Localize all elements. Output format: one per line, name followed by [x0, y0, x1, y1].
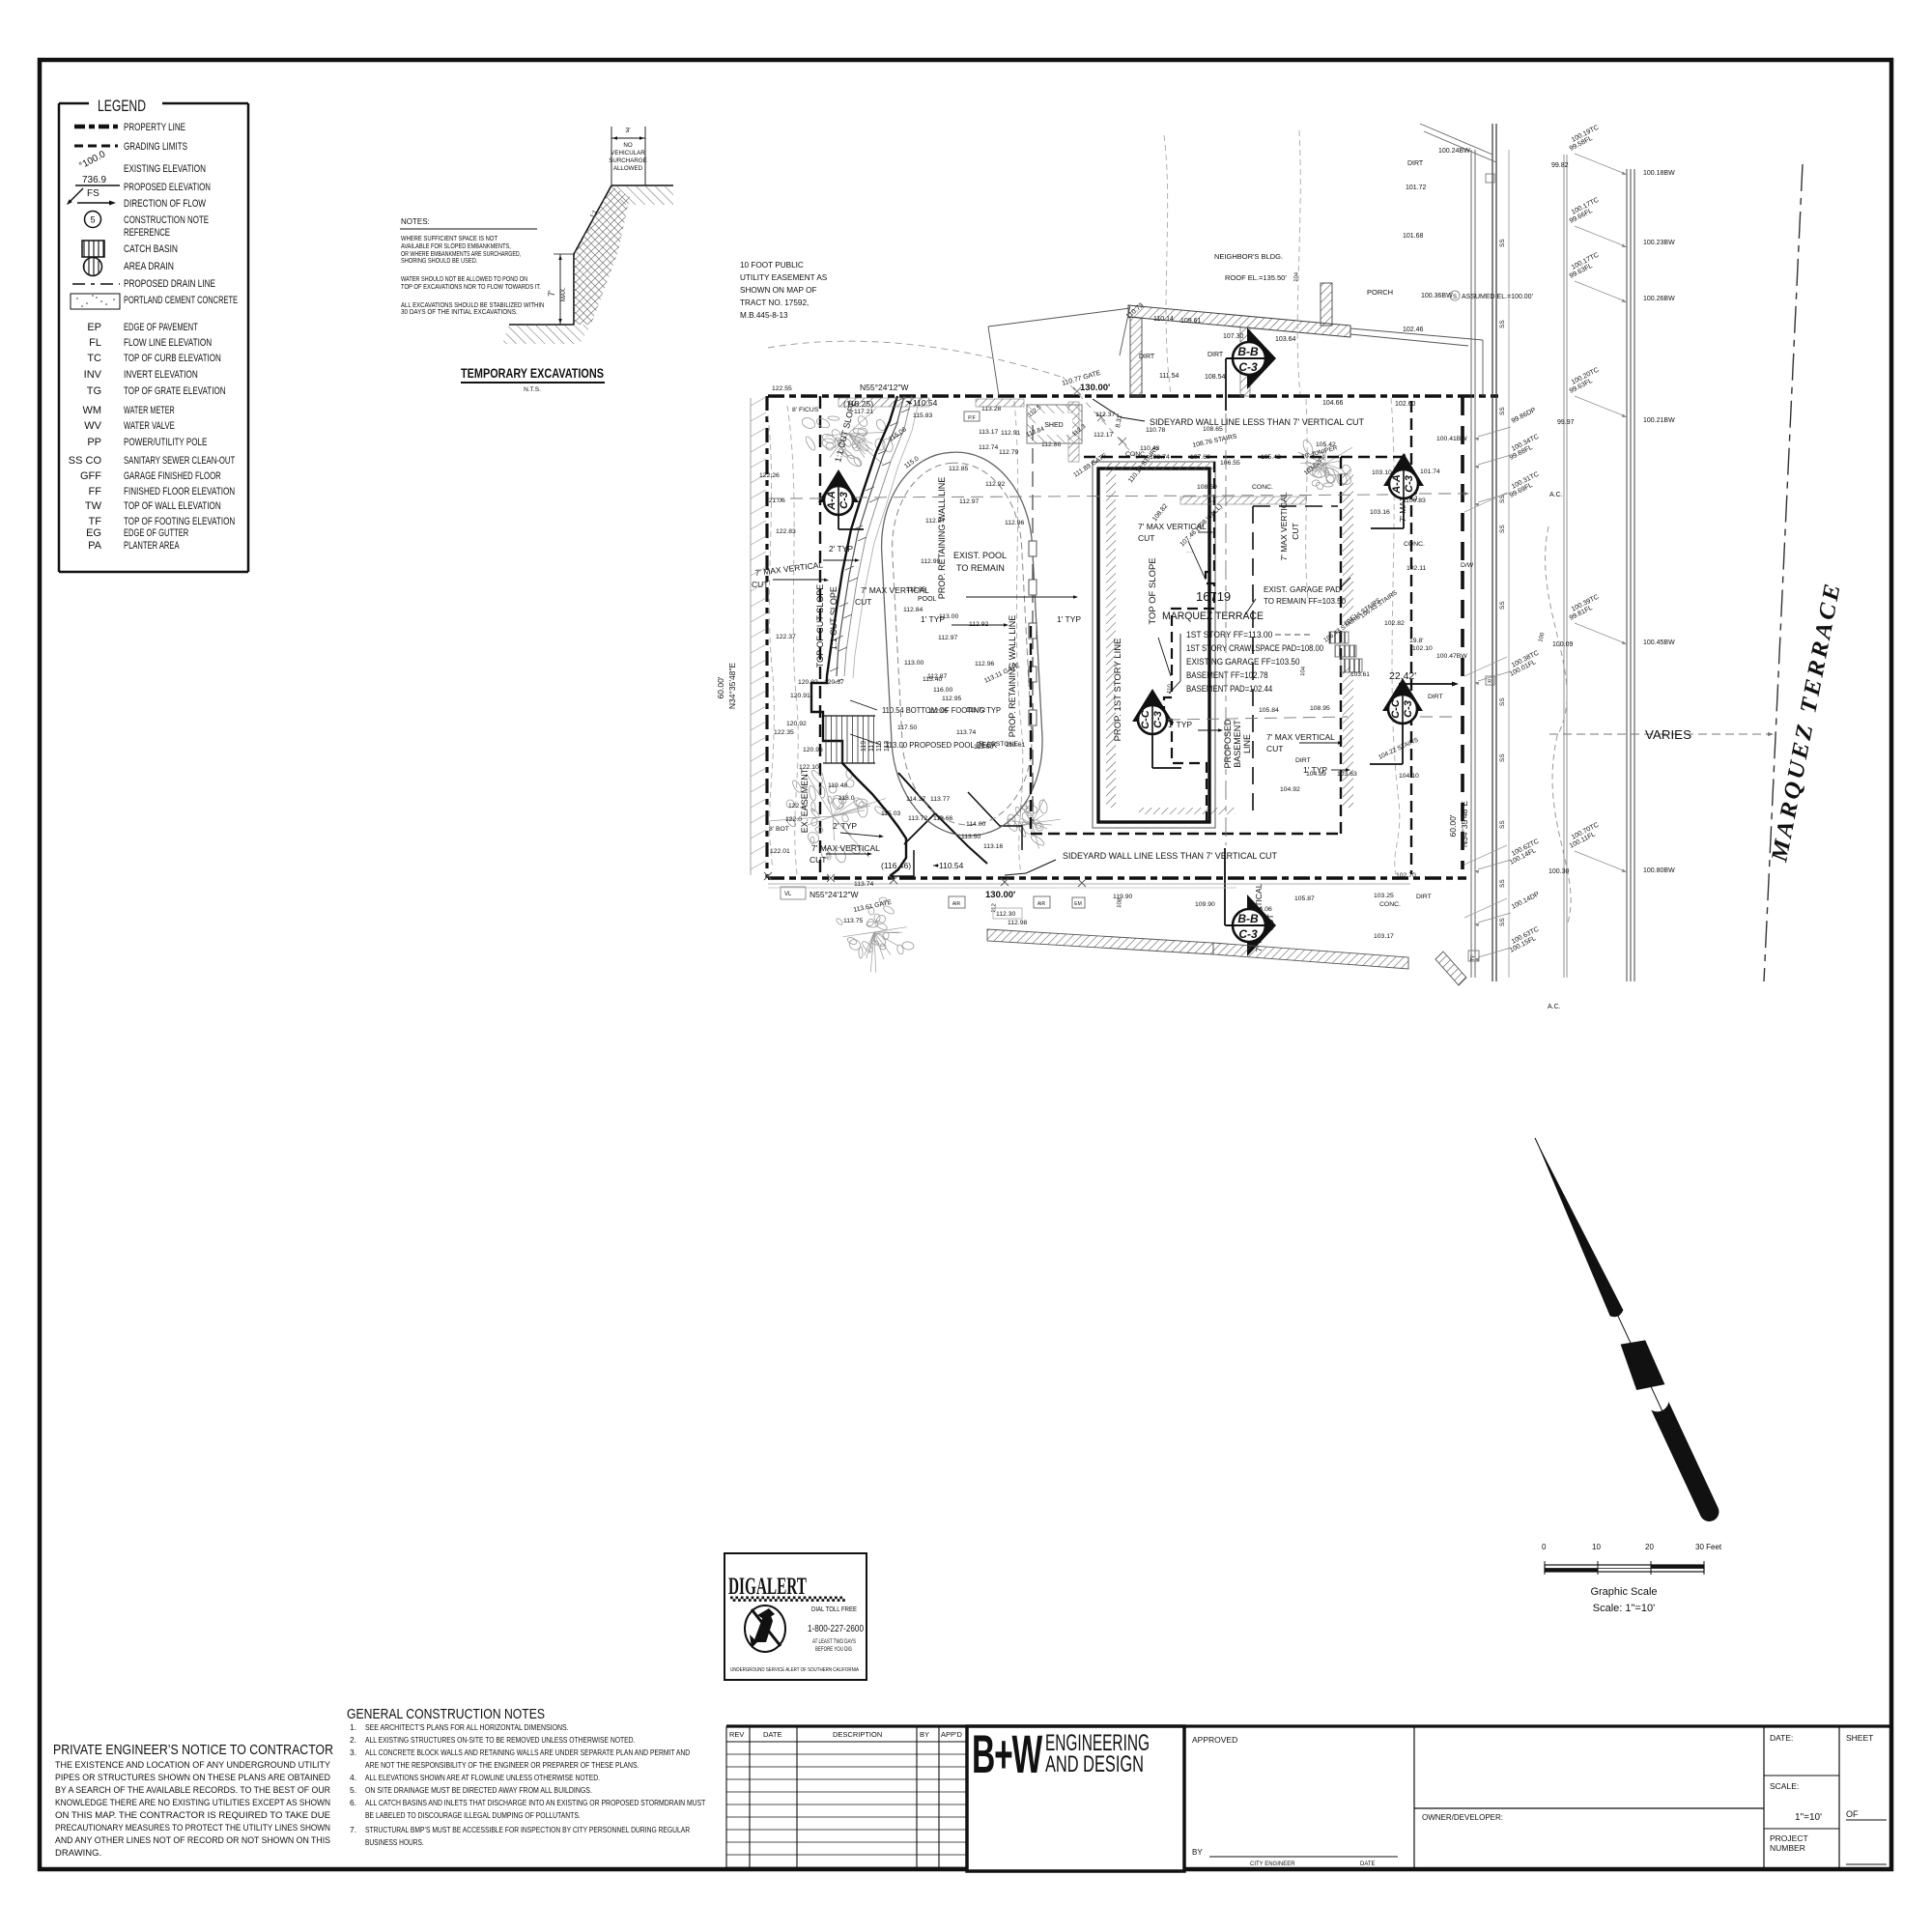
svg-text:N.T.S.: N.T.S. [524, 386, 541, 393]
svg-text:122.37: 122.37 [776, 634, 796, 640]
svg-text:7' MAX VERTICAL: 7' MAX VERTICAL [861, 585, 929, 595]
svg-text:736.9: 736.9 [82, 175, 106, 185]
svg-text:122.2: 122.2 [788, 803, 805, 810]
svg-text:LEGEND: LEGEND [98, 97, 146, 115]
svg-text:122.01: 122.01 [770, 848, 790, 855]
svg-text:115: 115 [876, 741, 883, 752]
svg-text:100.23BW: 100.23BW [1643, 240, 1675, 246]
svg-text:SS CO: SS CO [69, 455, 102, 467]
svg-text:103.63: 103.63 [1337, 771, 1357, 778]
svg-text:SS: SS [1499, 918, 1506, 926]
svg-text:1.: 1. [350, 1722, 356, 1732]
svg-text:103.10: 103.10 [1372, 469, 1392, 476]
svg-text:7' MAX VERTICAL: 7' MAX VERTICAL [1279, 492, 1289, 560]
svg-text:2' TYP: 2' TYP [829, 544, 853, 554]
svg-text:120.92: 120.92 [786, 721, 807, 727]
svg-text:OWNER/DEVELOPER:: OWNER/DEVELOPER: [1422, 1813, 1503, 1822]
svg-text:FS: FS [87, 188, 99, 199]
svg-text:113.66: 113.66 [933, 815, 953, 822]
svg-text:BASEMENT PAD=102.44: BASEMENT PAD=102.44 [1186, 684, 1272, 695]
svg-text:103.64: 103.64 [1275, 336, 1296, 343]
svg-text:POOL: POOL [918, 596, 937, 603]
svg-text:BY: BY [920, 1730, 929, 1739]
svg-text:DIRECTION OF FLOW: DIRECTION OF FLOW [124, 198, 206, 210]
svg-text:DRAWING.: DRAWING. [55, 1848, 101, 1859]
svg-text:2.: 2. [350, 1735, 356, 1745]
svg-text:FL: FL [89, 337, 101, 349]
svg-text:TOP OF EXCAVATIONS NOR TO FLOW: TOP OF EXCAVATIONS NOR TO FLOW TOWARDS I… [401, 284, 541, 291]
svg-text:OR WHERE EMBANKMENTS ARE SURCH: OR WHERE EMBANKMENTS ARE SURCHARGED, [401, 251, 521, 258]
svg-text:100.45BW: 100.45BW [1643, 639, 1675, 646]
svg-text:120.82: 120.82 [798, 679, 818, 686]
svg-text:PROP. 1ST STORY LINE: PROP. 1ST STORY LINE [1113, 639, 1123, 742]
svg-text:TOP OF FOOTING ELEVATION: TOP OF FOOTING ELEVATION [124, 516, 235, 527]
svg-text:110.78: 110.78 [1146, 427, 1166, 434]
svg-text:109.90: 109.90 [1195, 901, 1215, 908]
svg-text:PROPOSED ELEVATION: PROPOSED ELEVATION [124, 182, 211, 193]
svg-text:EDGE OF PAVEMENT: EDGE OF PAVEMENT [124, 322, 198, 333]
svg-text:112.79: 112.79 [999, 449, 1019, 456]
svg-text:108.69: 108.69 [1197, 484, 1217, 491]
svg-text:2' TYP: 2' TYP [833, 821, 857, 831]
svg-text:WATER METER: WATER METER [124, 405, 175, 416]
svg-text:(116.46): (116.46) [881, 861, 911, 870]
svg-text:PA: PA [88, 540, 102, 552]
svg-text:115.83: 115.83 [913, 412, 933, 419]
svg-text:112.96: 112.96 [1005, 520, 1025, 526]
svg-text:MAX.: MAX. [561, 287, 567, 301]
svg-text:115.03: 115.03 [881, 810, 901, 817]
svg-text:TO REMAIN FF=103.50: TO REMAIN FF=103.50 [1264, 596, 1346, 606]
svg-text:BE LABELED TO DISCOURAGE ILLEG: BE LABELED TO DISCOURAGE ILLEGAL DUMPING… [365, 1810, 581, 1820]
svg-text:130.00': 130.00' [1080, 383, 1110, 393]
svg-text:PROPOSED: PROPOSED [1223, 719, 1233, 769]
svg-text:EXISTING ELEVATION: EXISTING ELEVATION [124, 163, 206, 175]
svg-text:BUSINESS HOURS.: BUSINESS HOURS. [365, 1837, 424, 1847]
svg-text:113.50: 113.50 [961, 834, 981, 840]
svg-text:AND DESIGN: AND DESIGN [1045, 1751, 1144, 1777]
svg-text:112.91: 112.91 [1001, 430, 1021, 437]
svg-text:118.0: 118.0 [838, 795, 855, 802]
svg-text:6.: 6. [350, 1798, 356, 1807]
svg-text:PLANTER AREA: PLANTER AREA [124, 540, 180, 552]
svg-text:TV: TV [1470, 954, 1476, 961]
svg-text:99.82: 99.82 [1551, 162, 1569, 169]
svg-text:ALLOWED: ALLOWED [613, 165, 643, 172]
svg-text:103.17: 103.17 [1374, 933, 1394, 940]
svg-text:103.61: 103.61 [1350, 671, 1370, 678]
svg-text:3.: 3. [350, 1747, 356, 1757]
svg-text:WHERE SUFFICIENT SPACE IS NOT: WHERE SUFFICIENT SPACE IS NOT [401, 236, 498, 242]
svg-text:7' MAX VERTICAL: 7' MAX VERTICAL [1266, 732, 1335, 742]
svg-text:113.72: 113.72 [908, 815, 928, 822]
svg-text:CATCH BASIN: CATCH BASIN [124, 243, 178, 255]
svg-text:LINE: LINE [1242, 734, 1252, 753]
svg-text:TF: TF [89, 516, 102, 527]
svg-text:DIAL TOLL FREE: DIAL TOLL FREE [811, 1606, 857, 1613]
svg-text:C-C: C-C [1390, 698, 1402, 719]
svg-text:EXIST. GARAGE PAD: EXIST. GARAGE PAD [1264, 584, 1341, 594]
svg-text:AT LEAST TWO DAYS: AT LEAST TWO DAYS [812, 1639, 856, 1645]
svg-text:ROOF EL.=135.50′: ROOF EL.=135.50′ [1225, 273, 1287, 282]
svg-text:60.00': 60.00' [716, 676, 725, 698]
svg-text:112.30: 112.30 [996, 911, 1016, 918]
svg-text:SS: SS [1499, 820, 1506, 829]
svg-text:103.25: 103.25 [1374, 893, 1394, 899]
svg-text:SANITARY SEWER CLEAN-OUT: SANITARY SEWER CLEAN-OUT [124, 455, 235, 467]
svg-text:KNOWLEDGE THERE ARE NO EXISTIN: KNOWLEDGE THERE ARE NO EXISTING UTILITIE… [55, 1798, 330, 1808]
svg-text:SHED: SHED [1044, 422, 1063, 429]
svg-text:60.00': 60.00' [1448, 814, 1458, 837]
svg-text:112.74: 112.74 [979, 444, 999, 451]
svg-text:EP: EP [87, 322, 101, 333]
svg-text:105.87: 105.87 [1294, 895, 1315, 902]
svg-text:Graphic Scale: Graphic Scale [1590, 1586, 1657, 1598]
svg-text:POWER/UTILITY POLE: POWER/UTILITY POLE [124, 437, 207, 448]
svg-text:SHEET: SHEET [1846, 1733, 1873, 1743]
svg-text:VEHICULAR: VEHICULAR [611, 150, 645, 156]
svg-text:120.91: 120.91 [790, 693, 810, 699]
svg-text:GFF: GFF [80, 470, 101, 482]
svg-text:S: S [1453, 295, 1457, 300]
svg-text:103.16: 103.16 [1370, 509, 1390, 516]
svg-text:D/W: D/W [1461, 562, 1474, 569]
svg-text:116.00: 116.00 [933, 687, 953, 694]
svg-text:BY: BY [1192, 1848, 1203, 1857]
svg-text:CONC.: CONC. [1125, 451, 1147, 458]
svg-text:19.8': 19.8' [1409, 638, 1424, 644]
svg-text:SS: SS [1499, 525, 1506, 533]
svg-text:3': 3' [625, 128, 630, 134]
svg-text:SS: SS [1499, 407, 1506, 415]
svg-text:112.98: 112.98 [1008, 920, 1028, 926]
svg-text:117.21: 117.21 [854, 409, 874, 415]
svg-text:B+W: B+W [972, 1723, 1042, 1784]
svg-text:112.99: 112.99 [921, 558, 941, 565]
svg-text:1' TYP: 1' TYP [921, 614, 945, 624]
svg-text:99.97: 99.97 [1557, 419, 1575, 426]
svg-text:N34°35′48″E: N34°35′48″E [1460, 801, 1469, 848]
svg-text:P.F: P.F [968, 415, 976, 421]
svg-text:ALL EXCAVATIONS SHOULD BE STAB: ALL EXCAVATIONS SHOULD BE STABILIZED WIT… [401, 302, 544, 309]
svg-text:112.92: 112.92 [969, 621, 989, 628]
svg-text:110.14: 110.14 [1153, 316, 1174, 323]
svg-text:SS: SS [1499, 320, 1506, 328]
svg-text:C-3: C-3 [1238, 927, 1258, 941]
svg-text:4.: 4. [350, 1773, 356, 1782]
svg-text:TOP OF GRATE ELEVATION: TOP OF GRATE ELEVATION [124, 385, 226, 397]
svg-text:PORTLAND CEMENT CONCRETE: PORTLAND CEMENT CONCRETE [124, 295, 238, 306]
svg-text:104.66: 104.66 [1322, 400, 1344, 407]
svg-text:EXISTING GARAGE FF=103.50: EXISTING GARAGE FF=103.50 [1186, 657, 1300, 668]
svg-text:113.61: 113.61 [1006, 742, 1026, 749]
svg-text:C-3: C-3 [838, 492, 850, 509]
svg-text:TOP OF WALL ELEVATION: TOP OF WALL ELEVATION [124, 500, 221, 512]
svg-text:A.C.: A.C. [1548, 1004, 1561, 1010]
svg-text:N55°24′12″W: N55°24′12″W [810, 890, 859, 899]
svg-text:ALL EXISTING STRUCTURES ON-SIT: ALL EXISTING STRUCTURES ON-SITE TO BE RE… [365, 1735, 635, 1745]
svg-text:CUT: CUT [1138, 533, 1154, 543]
svg-text:112.37: 112.37 [1095, 412, 1116, 418]
svg-text:AREA DRAIN: AREA DRAIN [124, 261, 174, 272]
svg-text:CUT: CUT [1291, 523, 1300, 539]
svg-text:TEMPORARY EXCAVATIONS: TEMPORARY EXCAVATIONS [461, 366, 604, 381]
svg-text:DIRT: DIRT [1428, 694, 1443, 700]
svg-text:N34°35′48″E: N34°35′48″E [727, 663, 737, 710]
svg-text:VL: VL [784, 892, 792, 897]
svg-text:7' MAX VERTICAL: 7' MAX VERTICAL [1138, 522, 1207, 531]
svg-text:WV: WV [84, 420, 101, 432]
svg-text:113.17: 113.17 [979, 429, 999, 436]
svg-text:REFERENCE: REFERENCE [124, 227, 170, 239]
svg-text:AVAILABLE FOR SLOPED EMBANKMEN: AVAILABLE FOR SLOPED EMBANKMENTS, [401, 243, 511, 250]
svg-text:BEFORE YOU DIG: BEFORE YOU DIG [815, 1647, 852, 1653]
svg-text:100.18BW: 100.18BW [1643, 170, 1675, 177]
svg-text:PP: PP [87, 437, 101, 448]
svg-text:PRIVATE ENGINEER’S NOTICE TO C: PRIVATE ENGINEER’S NOTICE TO CONTRACTOR [53, 1743, 333, 1758]
svg-text:5.: 5. [350, 1785, 356, 1795]
svg-text:7': 7' [547, 290, 556, 297]
svg-text:ASSUMED EL.=100.00': ASSUMED EL.=100.00' [1462, 294, 1533, 300]
svg-text:113.16: 113.16 [983, 843, 1004, 850]
svg-text:112.17: 112.17 [1094, 432, 1114, 439]
svg-text:30 DAYS OF THE INITIAL EXCAVAT: 30 DAYS OF THE INITIAL EXCAVATIONS. [401, 309, 518, 316]
svg-text:REV: REV [729, 1730, 744, 1739]
svg-text:TG: TG [87, 385, 101, 397]
svg-text:104: 104 [1293, 271, 1300, 282]
svg-text:102.70: 102.70 [1396, 872, 1416, 879]
svg-text:SHOWN ON MAP OF: SHOWN ON MAP OF [740, 286, 816, 295]
svg-text:100.21BW: 100.21BW [1643, 417, 1675, 424]
svg-text:100.41BW: 100.41BW [1436, 436, 1467, 442]
svg-text:FINISHED FLOOR ELEVATION: FINISHED FLOOR ELEVATION [124, 486, 235, 497]
svg-text:5: 5 [90, 215, 95, 225]
svg-text:NEIGHBOR'S BLDG.: NEIGHBOR'S BLDG. [1214, 252, 1283, 261]
svg-text:SIDEYARD WALL LINE LESS THAN 7: SIDEYARD WALL LINE LESS THAN 7' VERTICAL… [1063, 851, 1278, 861]
svg-text:113.72: 113.72 [966, 707, 986, 714]
svg-text:EG: EG [86, 527, 101, 539]
svg-text:C-3: C-3 [1238, 360, 1258, 374]
svg-text:107.60: 107.60 [1190, 454, 1210, 461]
svg-text:INV: INV [84, 369, 102, 381]
svg-text:DIRT: DIRT [1407, 160, 1424, 167]
svg-text:100.36BW: 100.36BW [1421, 293, 1453, 299]
svg-text:1"=10': 1"=10' [1795, 1812, 1822, 1823]
svg-text:PROPOSED DRAIN LINE: PROPOSED DRAIN LINE [124, 278, 215, 290]
svg-text:108.95: 108.95 [1310, 705, 1330, 712]
svg-text:THE EXISTENCE AND LOCATION OF: THE EXISTENCE AND LOCATION OF ANY UNDERG… [55, 1760, 331, 1771]
svg-text:113.74: 113.74 [956, 729, 977, 736]
svg-text:GARAGE FINISHED FLOOR: GARAGE FINISHED FLOOR [124, 470, 221, 482]
svg-text:ARE NOT THE RESPONSIBILITY OF: ARE NOT THE RESPONSIBILITY OF THE ENGINE… [365, 1760, 639, 1770]
svg-text:8' BOT: 8' BOT [769, 826, 789, 833]
svg-text:TOP OF CURB ELEVATION: TOP OF CURB ELEVATION [124, 353, 221, 364]
svg-text:104.89: 104.89 [1306, 771, 1326, 778]
svg-text:113.74: 113.74 [854, 881, 874, 888]
svg-text:1-800-227-2600: 1-800-227-2600 [808, 1623, 864, 1634]
svg-text:C-3: C-3 [1404, 475, 1415, 493]
svg-text:106.55: 106.55 [1220, 460, 1240, 467]
svg-text:112.97: 112.97 [959, 498, 980, 505]
svg-text:PRECAUTIONARY MEASURES TO PROT: PRECAUTIONARY MEASURES TO PROTECT THE UT… [55, 1823, 330, 1833]
svg-text:DATE: DATE [763, 1730, 781, 1739]
svg-text:WATER VALVE: WATER VALVE [124, 420, 175, 432]
svg-text:20: 20 [1645, 1543, 1654, 1551]
svg-text:APP'D: APP'D [941, 1730, 962, 1739]
svg-text:104.10: 104.10 [1399, 773, 1419, 780]
svg-text:PROPERTY LINE: PROPERTY LINE [124, 122, 185, 133]
svg-text:GENERAL CONSTRUCTION NOTES: GENERAL CONSTRUCTION NOTES [347, 1706, 545, 1722]
svg-text:102.46: 102.46 [1403, 327, 1424, 333]
svg-text:STRUCTURAL BMP’S MUST BE ACCES: STRUCTURAL BMP’S MUST BE ACCESSIBLE FOR … [365, 1825, 690, 1834]
svg-text:CONC.: CONC. [1379, 901, 1401, 908]
svg-text:SS: SS [1499, 697, 1506, 706]
svg-text:APPROVED: APPROVED [1192, 1735, 1237, 1745]
svg-text:DIGALERT: DIGALERT [728, 1574, 807, 1600]
svg-text:ALL CONCRETE BLOCK WALLS AND R: ALL CONCRETE BLOCK WALLS AND RETAINING W… [365, 1747, 690, 1757]
svg-text:DIRT: DIRT [1416, 894, 1432, 900]
svg-text:SS: SS [1499, 601, 1506, 610]
svg-text:CUT: CUT [810, 855, 826, 865]
svg-text:122.10: 122.10 [799, 764, 819, 771]
svg-text:EXIST. POOL: EXIST. POOL [953, 551, 1007, 560]
svg-text:Scale: 1"=10': Scale: 1"=10' [1593, 1603, 1655, 1614]
svg-text:FF: FF [89, 486, 102, 497]
svg-text:102.60: 102.60 [1395, 401, 1416, 408]
svg-text:PORCH: PORCH [1367, 288, 1393, 297]
svg-text:100.80BW: 100.80BW [1643, 867, 1675, 874]
svg-text:CUT: CUT [855, 597, 871, 607]
svg-text:SS: SS [1499, 753, 1506, 762]
svg-text:DESCRIPTION: DESCRIPTION [833, 1730, 882, 1739]
svg-text:8' FICUS: 8' FICUS [792, 407, 819, 413]
svg-text:B-B: B-B [1237, 345, 1259, 358]
svg-text:A-A: A-A [826, 491, 838, 511]
svg-text:105.42: 105.42 [1261, 454, 1281, 461]
svg-text:A.C.: A.C. [1549, 492, 1563, 498]
svg-text:122.55: 122.55 [772, 385, 792, 392]
svg-text:113.75: 113.75 [843, 918, 864, 924]
svg-text:PROP. RETAINING WALL LINE: PROP. RETAINING WALL LINE [937, 477, 947, 600]
svg-text:112.84: 112.84 [903, 607, 923, 613]
svg-text:B-B: B-B [1237, 912, 1259, 925]
svg-text:BASEMENT: BASEMENT [1233, 720, 1242, 768]
svg-text:10 FOOT PUBLIC: 10 FOOT PUBLIC [740, 261, 804, 270]
svg-text:120.37: 120.37 [824, 679, 844, 686]
svg-text:104.92: 104.92 [1280, 786, 1300, 793]
svg-text:100.26BW: 100.26BW [1643, 296, 1675, 302]
svg-text:122.35: 122.35 [774, 729, 794, 736]
svg-text:108.65: 108.65 [1203, 426, 1223, 433]
svg-text:CUT: CUT [752, 580, 768, 589]
svg-text:EX. EASEMENT: EX. EASEMENT [800, 768, 810, 833]
svg-text:PROP. RETAINING WALL LINE: PROP. RETAINING WALL LINE [1008, 615, 1017, 738]
svg-text:UNDERGROUND SERVICE ALERT OF S: UNDERGROUND SERVICE ALERT OF SOUTHERN CA… [730, 1667, 859, 1673]
svg-text:112.85: 112.85 [949, 466, 969, 472]
svg-text:112.96: 112.96 [975, 661, 995, 668]
svg-text:TC: TC [87, 353, 101, 364]
svg-text:WM: WM [82, 405, 101, 416]
svg-text:114.00: 114.00 [966, 821, 986, 828]
svg-text:PIPES OR STRUCTURES SHOWN ON T: PIPES OR STRUCTURES SHOWN ON THESE PLANS… [55, 1773, 330, 1783]
svg-text:122.26: 122.26 [759, 472, 780, 479]
svg-text:10: 10 [1592, 1543, 1601, 1551]
svg-text:BY A SEARCH OF THE AVAILABLE R: BY A SEARCH OF THE AVAILABLE RECORDS. TO… [55, 1785, 330, 1796]
svg-text:SS: SS [1499, 239, 1506, 247]
svg-text:M.B.445-8-13: M.B.445-8-13 [740, 311, 788, 320]
svg-text:130.00': 130.00' [985, 890, 1015, 900]
svg-text:CONSTRUCTION NOTE: CONSTRUCTION NOTE [124, 214, 209, 226]
svg-text:102.82: 102.82 [1384, 620, 1405, 627]
svg-text:EDGE OF GUTTER: EDGE OF GUTTER [124, 527, 188, 539]
svg-text:C-3: C-3 [1403, 700, 1414, 718]
svg-text:101.68: 101.68 [1403, 233, 1424, 240]
svg-text:AND ANY OTHER LINES NOT OF REC: AND ANY OTHER LINES NOT OF RECORD OR NOT… [55, 1835, 330, 1846]
svg-text:112.95: 112.95 [928, 708, 949, 715]
svg-text:100.30: 100.30 [1548, 868, 1570, 875]
svg-text:PROJECT: PROJECT [1770, 1833, 1808, 1843]
svg-text:A-A: A-A [1391, 474, 1403, 495]
svg-text:NUMBER: NUMBER [1770, 1843, 1805, 1853]
svg-text:NO: NO [623, 142, 632, 149]
svg-text:110.54: 110.54 [939, 861, 964, 870]
svg-text:100.09: 100.09 [1552, 641, 1574, 648]
svg-text:119.90: 119.90 [1113, 894, 1133, 900]
svg-text:0: 0 [1542, 1543, 1547, 1551]
svg-text:7.: 7. [350, 1825, 356, 1834]
svg-text:DIRT: DIRT [1139, 354, 1155, 360]
svg-text:TW: TW [85, 500, 102, 512]
svg-text:101.74: 101.74 [1420, 469, 1440, 475]
svg-text:112.95: 112.95 [942, 696, 962, 702]
svg-text:SIDEYARD WALL LINE LESS THAN 7: SIDEYARD WALL LINE LESS THAN 7' VERTICAL… [1150, 417, 1365, 427]
svg-text:BASEMENT FF=102.78: BASEMENT FF=102.78 [1186, 670, 1268, 681]
svg-text:WATER SHOULD NOT BE ALLOWED TO: WATER SHOULD NOT BE ALLOWED TO POND ON [401, 276, 527, 283]
svg-text:CUT: CUT [1266, 744, 1283, 753]
svg-text:C-C: C-C [1140, 709, 1151, 729]
svg-text:INVERT ELEVATION: INVERT ELEVATION [124, 369, 198, 381]
svg-text:UTILITY EASEMENT AS: UTILITY EASEMENT AS [740, 273, 828, 282]
svg-text:112.92: 112.92 [985, 481, 1006, 488]
svg-text:TOP OF SLOPE: TOP OF SLOPE [1186, 552, 1194, 554]
svg-text:107.30: 107.30 [1223, 333, 1244, 340]
svg-text:TO REMAIN: TO REMAIN [956, 563, 1005, 573]
svg-text:114.37: 114.37 [906, 796, 926, 803]
svg-text:1:1 CUT SLOPE: 1:1 CUT SLOPE [829, 586, 838, 650]
svg-text:113.00: 113.00 [904, 660, 924, 667]
svg-text:122.0: 122.0 [785, 816, 802, 823]
svg-text:109.61: 109.61 [1180, 318, 1202, 325]
svg-text:120.96: 120.96 [803, 747, 823, 753]
svg-text:105.42: 105.42 [1316, 441, 1336, 448]
svg-text:119: 119 [861, 741, 867, 752]
svg-text:1ST STORY FF=113.00: 1ST STORY FF=113.00 [1186, 630, 1272, 640]
svg-text:ON SITE DRAINAGE MUST BE DIREC: ON SITE DRAINAGE MUST BE DIRECTED AWAY F… [365, 1785, 592, 1795]
svg-text:FLOW LINE ELEVATION: FLOW LINE ELEVATION [124, 337, 212, 349]
svg-text:SURCHARGE: SURCHARGE [609, 157, 647, 164]
svg-text:108.54: 108.54 [1205, 374, 1226, 381]
svg-text:N55°24′12″W: N55°24′12″W [860, 383, 909, 392]
svg-text:AIR: AIR [952, 901, 961, 907]
svg-text:104: 104 [1300, 666, 1307, 676]
svg-text:ALL CATCH BASINS AND INLETS TH: ALL CATCH BASINS AND INLETS THAT DISCHAR… [365, 1798, 705, 1807]
svg-text:AIR: AIR [1037, 901, 1046, 907]
svg-text:119.48: 119.48 [828, 782, 848, 789]
svg-text:CONC.: CONC. [1252, 484, 1273, 491]
svg-text:1ST STORY CRAWLSPACE PAD=108.0: 1ST STORY CRAWLSPACE PAD=108.00 [1186, 643, 1323, 654]
svg-text:DATE:: DATE: [1770, 1733, 1793, 1743]
svg-text:SEE ARCHITECT’S PLANS FOR ALL: SEE ARCHITECT’S PLANS FOR ALL HORIZONTAL… [365, 1722, 569, 1732]
